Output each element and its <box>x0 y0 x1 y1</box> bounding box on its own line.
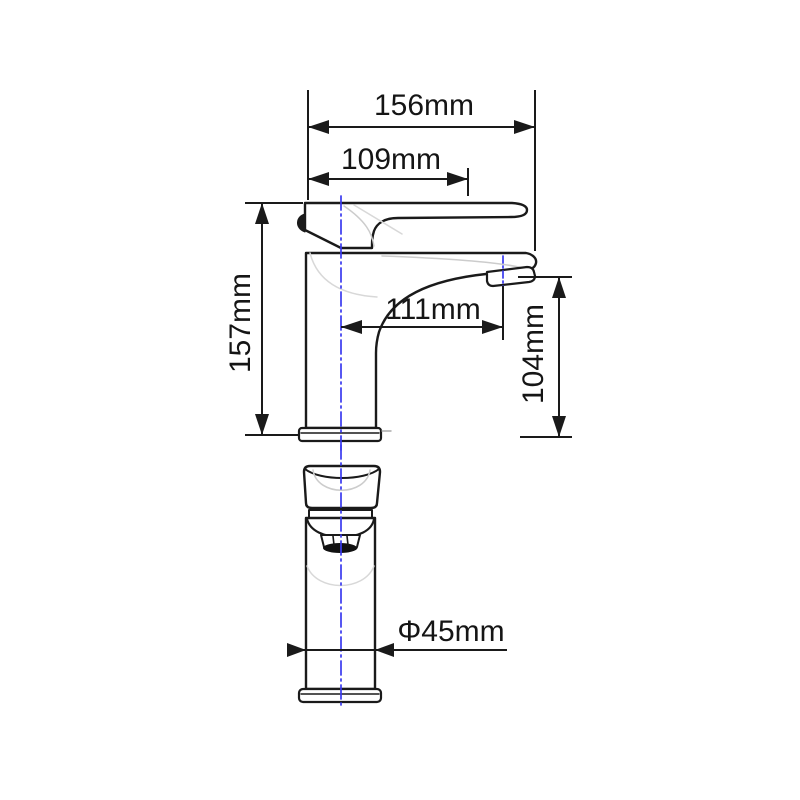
dim-label-overall-length: 156mm <box>374 91 474 121</box>
dim-label-handle-length: 109mm <box>341 145 441 175</box>
faucet-front-view <box>299 445 381 708</box>
dim-label-spout-height: 104mm <box>519 304 549 404</box>
drawing-canvas: 156mm 109mm 157mm 111mm 104mm Φ45mm <box>0 0 800 800</box>
side-base-flange <box>299 428 381 441</box>
front-aerator-facet-2 <box>347 536 348 545</box>
dim-label-spout-reach: 111mm <box>385 295 481 325</box>
side-handle-knob <box>297 214 305 232</box>
front-handle <box>304 466 380 508</box>
front-aerator-mesh <box>323 543 357 553</box>
dim-label-base-diameter: Φ45mm <box>397 617 504 647</box>
side-handle <box>305 203 527 248</box>
front-aerator-facet-1 <box>333 536 334 545</box>
front-base-flange <box>299 689 381 702</box>
dim-label-total-height: 157mm <box>226 273 256 373</box>
